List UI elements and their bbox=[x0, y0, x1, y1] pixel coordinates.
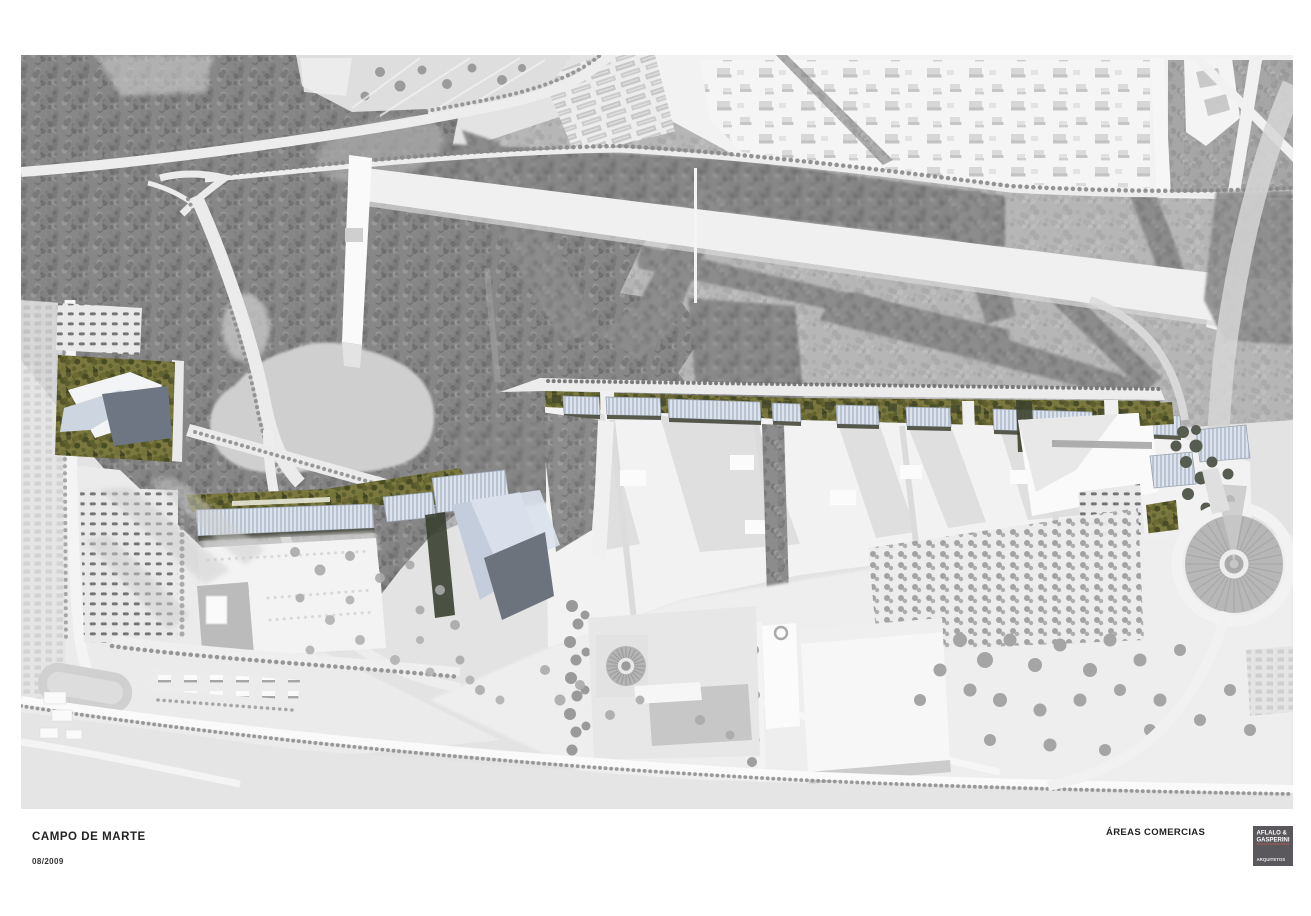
svg-text:GASPERINI: GASPERINI bbox=[1257, 838, 1290, 844]
svg-text:ÁREAS COMERCIAS: ÁREAS COMERCIAS bbox=[1106, 827, 1205, 838]
svg-text:CAMPO DE MARTE: CAMPO DE MARTE bbox=[32, 831, 146, 843]
svg-text:AFLALO &: AFLALO & bbox=[1257, 831, 1288, 837]
svg-text:08/2009: 08/2009 bbox=[32, 857, 64, 866]
svg-text:ARQUITETOS: ARQUITETOS bbox=[1257, 857, 1286, 862]
